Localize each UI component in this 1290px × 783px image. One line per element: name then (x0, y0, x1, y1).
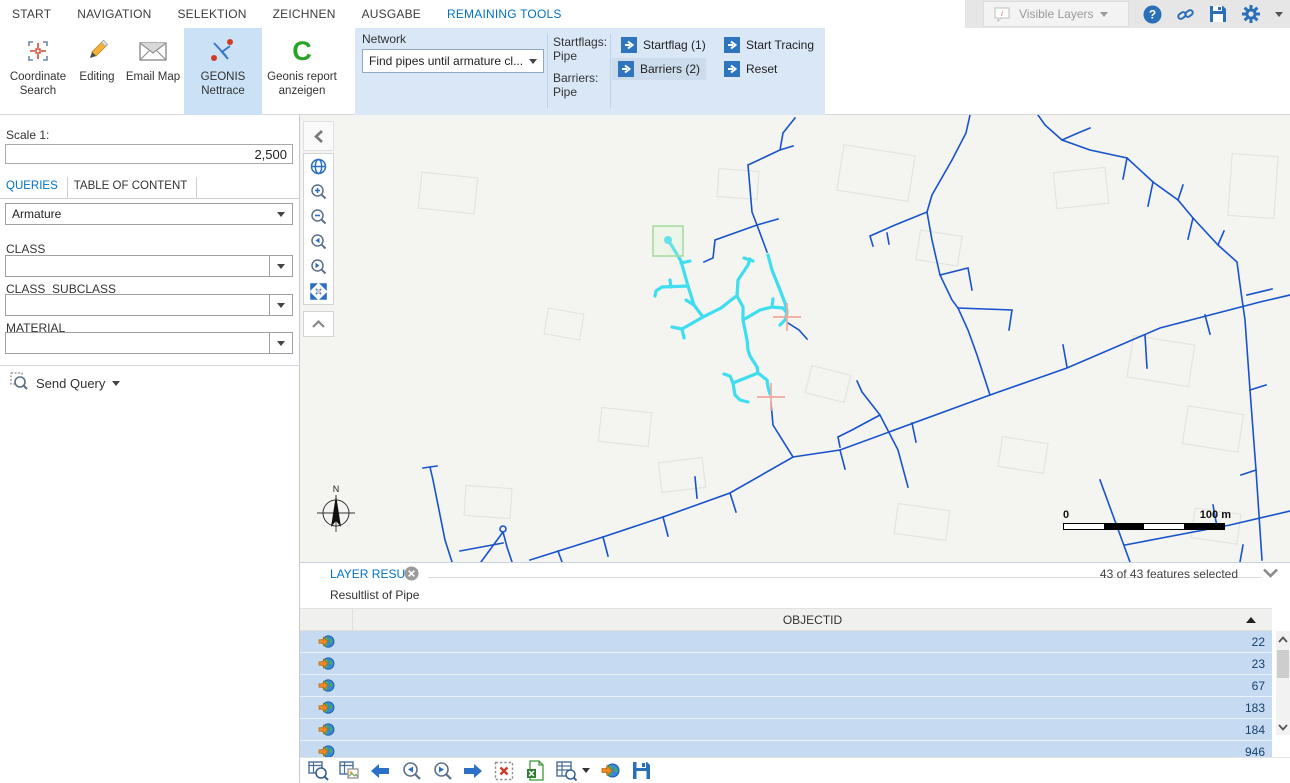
result-table: OBJECTID 222367183184946 (300, 608, 1272, 763)
visible-layers-label: Visible Layers (1019, 7, 1093, 21)
zoom-to-feature-icon[interactable] (300, 634, 352, 649)
svg-text:i: i (1000, 9, 1002, 18)
class-subclass-dropdown[interactable] (5, 294, 293, 316)
coordinate-search-button[interactable]: Coordinate Search (4, 28, 72, 115)
previous-record-icon[interactable] (369, 760, 391, 782)
objectid-column-header[interactable]: OBJECTID (353, 613, 1272, 627)
export-excel-icon[interactable] (524, 760, 546, 782)
reset-button[interactable]: Reset (718, 58, 783, 80)
tab-selektion[interactable]: SELEKTION (177, 7, 246, 21)
titlebar-right: i Visible Layers ? (965, 0, 1290, 28)
collapse-map-tools-button[interactable] (303, 311, 334, 337)
left-panel: Scale 1: QUERIES TABLE OF CONTENT Armatu… (0, 115, 300, 783)
editing-button[interactable]: Editing (72, 28, 122, 115)
gear-icon[interactable] (1241, 4, 1261, 24)
next-extent-icon[interactable] (304, 254, 333, 279)
tab-ausgabe[interactable]: AUSGABE (362, 7, 421, 21)
clear-selection-icon[interactable] (493, 760, 515, 782)
start-tracing-button[interactable]: Start Tracing (718, 34, 820, 56)
email-map-label: Email Map (126, 70, 180, 84)
email-map-button[interactable]: Email Map (122, 28, 184, 115)
selection-summary: 43 of 43 features selected (1100, 567, 1238, 581)
barriers-button[interactable]: Barriers (2) (612, 58, 706, 80)
table-row[interactable]: 22 (300, 631, 1272, 653)
globe-icon[interactable] (304, 154, 333, 179)
arrow-action-icon (621, 37, 637, 53)
building-outlines (418, 145, 1278, 544)
full-extent-icon[interactable] (304, 279, 333, 304)
objectid-value: 183 (352, 701, 1272, 715)
scroll-down-icon[interactable] (1276, 719, 1290, 735)
query-template-value: Armature (6, 207, 270, 221)
report-options-caret[interactable] (582, 768, 590, 773)
tab-navigation[interactable]: NAVIGATION (77, 7, 151, 21)
arrow-action-icon (618, 61, 634, 77)
table-scrollbar[interactable] (1276, 631, 1290, 735)
geonis-report-button[interactable]: C Geonis report anzeigen (262, 28, 342, 115)
visible-layers-dropdown[interactable]: i Visible Layers (983, 1, 1129, 27)
zoom-to-feature-icon[interactable] (300, 700, 352, 715)
result-rows: 222367183184946 (300, 631, 1272, 763)
ribbon: Coordinate Search Editing Email Map GEON… (0, 28, 1290, 115)
scale-input[interactable] (5, 144, 293, 164)
send-query-caret[interactable] (112, 381, 120, 386)
save-results-icon[interactable] (630, 760, 652, 782)
divider (0, 365, 300, 366)
tab-start[interactable]: START (12, 7, 51, 21)
ribbon-separator (547, 34, 548, 108)
pipe-network-graphic (300, 115, 1290, 562)
previous-extent-icon[interactable] (304, 229, 333, 254)
barrier-markers (757, 303, 801, 411)
objectid-value: 23 (352, 657, 1272, 671)
chevron-down-icon[interactable] (269, 295, 292, 315)
zoom-next-icon[interactable] (431, 760, 453, 782)
left-panel-tabs: QUERIES TABLE OF CONTENT (0, 177, 300, 199)
objectid-value: 22 (352, 635, 1272, 649)
geonis-report-label: Geonis report anzeigen (267, 70, 337, 99)
class-label: CLASS (6, 242, 45, 256)
zoom-to-feature-icon[interactable] (300, 722, 352, 737)
objectid-value: 184 (352, 723, 1272, 737)
scroll-up-icon[interactable] (1276, 631, 1290, 647)
table-row[interactable]: 183 (300, 697, 1272, 719)
pipe-lines (423, 115, 1290, 562)
geonis-app-window: START NAVIGATION SELEKTION ZEICHNEN AUSG… (0, 0, 1290, 783)
scrollbar-thumb[interactable] (1277, 650, 1289, 678)
zoom-previous-icon[interactable] (400, 760, 422, 782)
tab-table-of-content[interactable]: TABLE OF CONTENT (68, 177, 198, 198)
zoom-to-all-icon[interactable] (599, 760, 621, 782)
startflag-marker (653, 226, 683, 256)
geonis-nettrace-label: GEONIS Nettrace (201, 70, 246, 99)
result-subtitle: Resultlist of Pipe (330, 588, 419, 602)
report-table-icon[interactable] (555, 760, 577, 782)
envelope-icon (138, 34, 168, 68)
tab-remaining-tools[interactable]: REMAINING TOOLS (447, 7, 562, 21)
send-query-icon (10, 372, 29, 394)
zoom-to-feature-icon[interactable] (300, 678, 352, 693)
close-layer-result-icon[interactable] (404, 566, 419, 584)
network-mode-dropdown[interactable]: Find pipes until armature cl... (362, 49, 544, 73)
class-dropdown[interactable] (5, 255, 293, 277)
startflag-button[interactable]: Startflag (1) (615, 34, 712, 56)
coordinate-search-label: Coordinate Search (10, 70, 66, 99)
icon-column-header (300, 609, 353, 630)
show-form-icon[interactable] (338, 760, 360, 782)
geonis-nettrace-button[interactable]: GEONIS Nettrace (184, 28, 262, 115)
startflags-label: Startflags:Pipe (553, 35, 607, 63)
collapse-left-panel-button[interactable] (303, 121, 334, 151)
material-dropdown[interactable] (5, 332, 293, 354)
link-icon[interactable] (1176, 4, 1195, 24)
network-group-label: Network (362, 32, 544, 46)
objectid-value: 67 (352, 679, 1272, 693)
send-query-button[interactable]: Send Query (10, 372, 120, 394)
coordinate-search-icon (25, 34, 51, 68)
compass-north-label: N (333, 484, 340, 494)
map-tools-panel (303, 153, 334, 305)
query-template-dropdown[interactable]: Armature (5, 203, 293, 225)
table-row[interactable]: 23 (300, 653, 1272, 675)
chevron-down-icon (270, 204, 292, 224)
result-toolbar (300, 757, 1290, 783)
chevron-down-icon[interactable] (269, 256, 292, 276)
map-scalebar: 0 100 m (1063, 509, 1225, 530)
chevron-down-icon (1100, 12, 1108, 17)
barriers-label: Barriers:Pipe (553, 71, 598, 99)
table-row[interactable]: 184 (300, 719, 1272, 741)
scalebar-start-label: 0 (1063, 509, 1069, 521)
next-record-icon[interactable] (462, 760, 484, 782)
tab-zeichnen[interactable]: ZEICHNEN (273, 7, 336, 21)
editing-label: Editing (79, 70, 114, 84)
chevron-down-icon (529, 59, 537, 64)
table-row[interactable]: 67 (300, 675, 1272, 697)
compass: N (312, 483, 360, 538)
trace-result-lines (655, 238, 787, 402)
gear-menu-caret[interactable] (1275, 12, 1283, 17)
chevron-down-icon[interactable] (269, 333, 292, 353)
svg-text:?: ? (1149, 7, 1156, 21)
map-canvas[interactable]: N 0 100 m (300, 115, 1290, 562)
pencil-icon (84, 34, 110, 68)
collapse-result-panel-icon[interactable] (1263, 567, 1278, 581)
zoom-in-icon[interactable] (304, 179, 333, 204)
tab-queries[interactable]: QUERIES (0, 177, 68, 198)
scale-label: Scale 1: (6, 128, 49, 142)
sort-ascending-icon[interactable] (1246, 617, 1256, 623)
zoom-to-feature-icon[interactable] (300, 656, 352, 671)
arrow-action-icon (724, 61, 740, 77)
ribbon-separator (610, 34, 611, 108)
zoom-out-icon[interactable] (304, 204, 333, 229)
layer-result-panel: LAYER RESULT 43 of 43 features selected … (300, 562, 1290, 757)
report-c-icon: C (292, 34, 312, 68)
help-icon[interactable]: ? (1143, 4, 1162, 24)
scalebar-end-label: 100 m (1200, 509, 1231, 521)
callout-info-icon: i (992, 4, 1012, 24)
save-icon[interactable] (1209, 4, 1227, 24)
table-header-row[interactable]: OBJECTID (300, 608, 1272, 631)
network-mode-value: Find pipes until armature cl... (369, 54, 523, 68)
arrow-action-icon (724, 37, 740, 53)
nettrace-icon (209, 34, 237, 68)
zoom-to-selection-table-icon[interactable] (307, 760, 329, 782)
menu-bar: START NAVIGATION SELEKTION ZEICHNEN AUSG… (0, 0, 1290, 28)
